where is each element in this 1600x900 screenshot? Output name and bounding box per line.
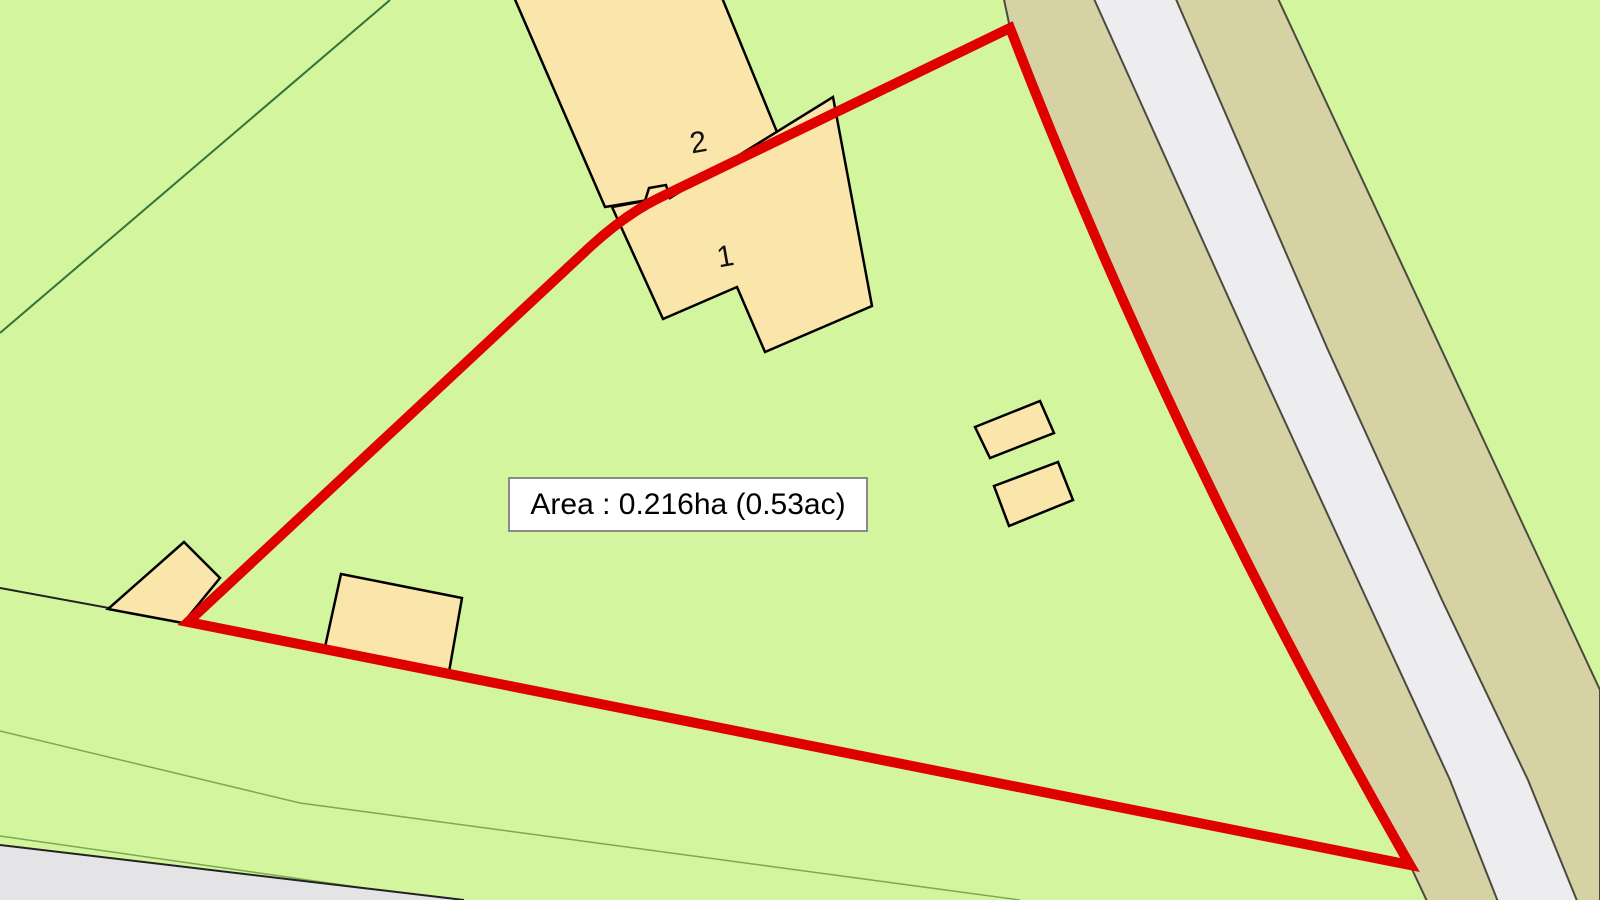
site-plan-map: 21 (0, 0, 1600, 900)
outbuilding-lower (994, 462, 1073, 526)
area-label: Area : 0.216ha (0.53ac) (508, 477, 868, 532)
outbuilding-upper (975, 401, 1054, 458)
road-surface (1090, 0, 1597, 900)
map-canvas: 21 Area : 0.216ha (0.53ac) (0, 0, 1600, 900)
area-label-text: Area : 0.216ha (0.53ac) (530, 488, 845, 522)
field-boundary-diagonal (0, 0, 390, 333)
